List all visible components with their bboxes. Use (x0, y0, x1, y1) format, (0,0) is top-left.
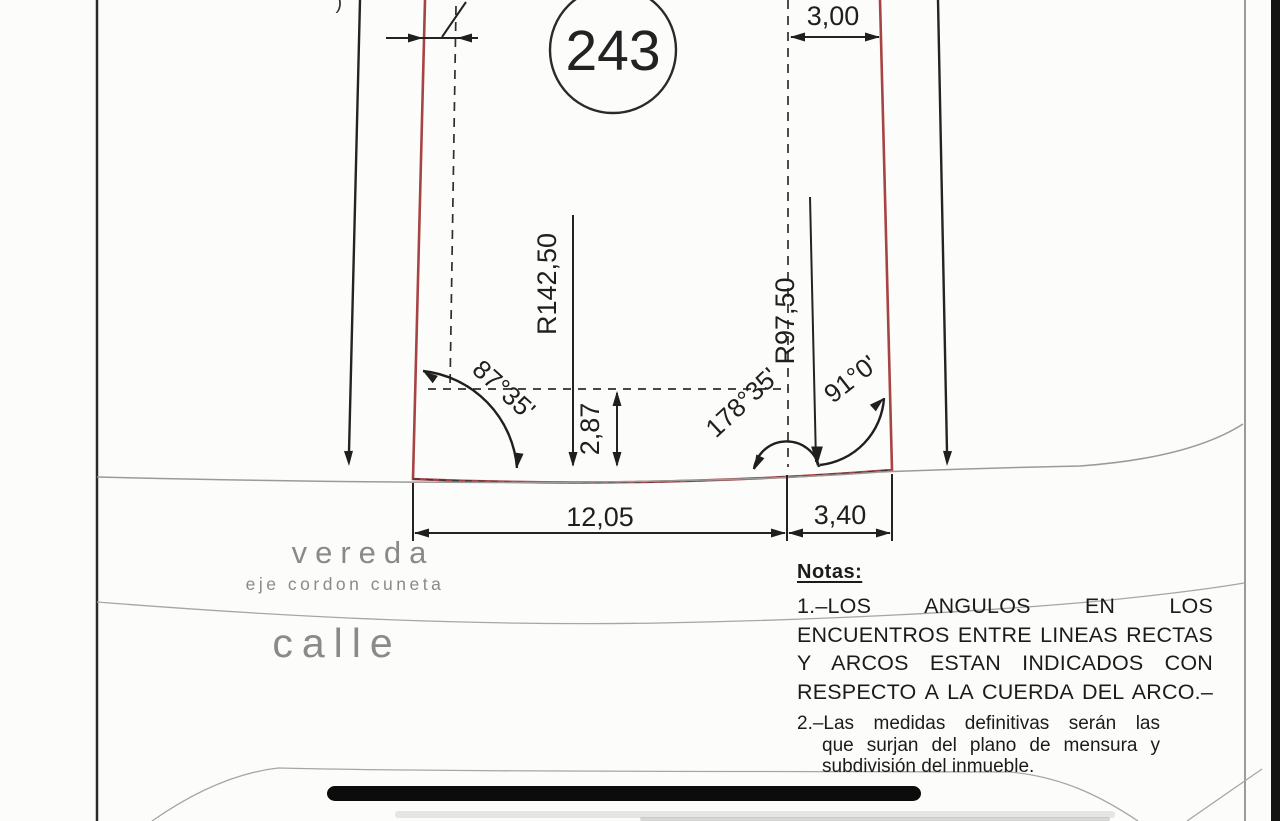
scanned-survey-plan: { "drawing": { "parcel_number": "243", "… (0, 0, 1280, 821)
parcel-number: 243 (565, 19, 660, 83)
label-eje-cordon-cuneta: eje cordon cuneta (246, 574, 445, 594)
left-neighbour-boundary-line (349, 0, 360, 452)
sidewalk-edge-line (97, 424, 1243, 482)
radius-97-label: R97,50 (770, 277, 800, 364)
label-calle: calle (272, 620, 401, 666)
dim-3-00-label: 3,00 (807, 1, 860, 31)
right-neighbour-boundary-line (938, 0, 947, 452)
dim-3-40-arrowhead-right (876, 529, 891, 538)
note-2-line: 2.–Las medidas definitivas serán las (797, 713, 1160, 735)
dim-2-87-arrowhead-down (613, 452, 622, 467)
dim-2-87-arrowhead-up (613, 391, 622, 406)
dim-3-00-arrowhead-left (790, 33, 805, 42)
note-1-line: ENCUENTROS ENTRE LINEAS RECTAS (797, 621, 1213, 650)
note-1-line: 1.–LOS ANGULOS EN LOS (797, 592, 1213, 621)
angle-178-arrowhead (750, 455, 764, 472)
note-1: 1.–LOS ANGULOS EN LOS ENCUENTROS ENTRE L… (797, 592, 1215, 706)
angle-178-arc (754, 441, 819, 469)
dim-3-40-arrowhead-left (788, 529, 803, 538)
angle-87-arrowhead-start (420, 367, 437, 383)
notes-title: Notas: (797, 561, 1215, 584)
note-2-line: subdivisión del inmueble. (822, 756, 1160, 778)
top-left-dim-arrowhead-left (457, 34, 472, 43)
cutoff-partial-mark: ’) (331, 0, 342, 14)
angle-91-label: 91°0' (818, 349, 883, 409)
dashed-line-left (450, 6, 456, 388)
redaction-bar (327, 786, 921, 801)
label-vereda: vereda (292, 535, 435, 570)
dim-12-05-arrowhead-right (771, 529, 786, 538)
dim-3-40-label: 3,40 (814, 500, 867, 530)
bottom-edge-artifact (395, 811, 1115, 818)
photo-right-edge (1271, 0, 1280, 821)
note-2: 2.–Las medidas definitivas serán las que… (797, 713, 1160, 778)
note-2-line: que surjan del plano de mensura y (822, 735, 1160, 757)
dim-3-00-arrowhead-right (865, 33, 880, 42)
left-boundary-arrowhead (344, 451, 354, 466)
radius-142-label: R142,50 (532, 233, 562, 335)
top-left-dim-arrowhead-right (408, 34, 423, 43)
notes-block: Notas: 1.–LOS ANGULOS EN LOS ENCUENTROS … (797, 561, 1215, 778)
right-boundary-arrowhead (943, 451, 953, 466)
radius-97-line (810, 197, 816, 462)
note-1-line: RESPECTO A LA CUERDA DEL ARCO.– (797, 678, 1213, 707)
angle-178-label: 178°35' (700, 362, 785, 444)
note-1-line: Y ARCOS ESTAN INDICADOS CON (797, 649, 1213, 678)
dim-2-87-label: 2,87 (575, 403, 605, 456)
bottom-edge-artifact-2 (640, 817, 1110, 821)
dim-12-05-label: 12,05 (566, 502, 634, 532)
top-left-dim-leader (442, 2, 466, 37)
